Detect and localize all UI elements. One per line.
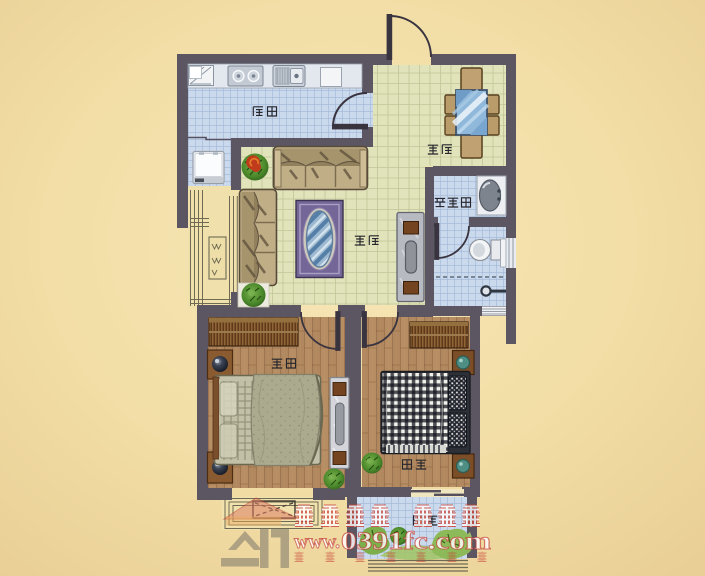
svg-text:www.: www. [294, 531, 340, 553]
svg-text:0391fc.com: 0391fc.com [341, 528, 491, 555]
